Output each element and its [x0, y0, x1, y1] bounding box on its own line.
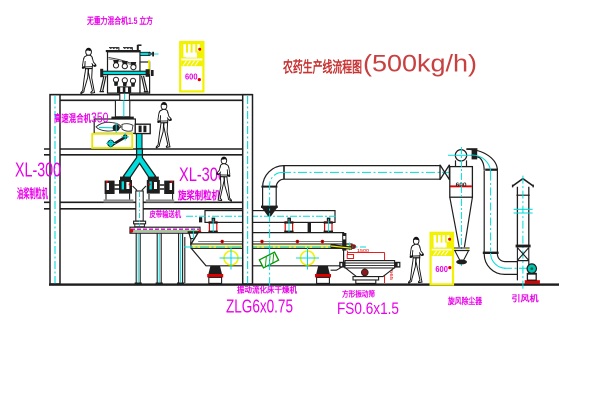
svg-text:1500: 1500	[357, 248, 370, 253]
svg-text:农药生产线流程图: 农药生产线流程图	[282, 58, 362, 76]
svg-text:(500kg/h): (500kg/h)	[363, 51, 477, 78]
svg-text:方形振动筛: 方形振动筛	[342, 288, 375, 298]
svg-text:旋桨制粒机: 旋桨制粒机	[177, 188, 220, 202]
svg-text:旋风除尘器: 旋风除尘器	[447, 296, 482, 306]
svg-text:高速混合机: 高速混合机	[54, 112, 91, 125]
svg-text:振动流化床干燥机: 振动流化床干燥机	[237, 284, 297, 294]
svg-text:XL-300: XL-300	[15, 160, 61, 182]
svg-text:600: 600	[185, 73, 198, 82]
svg-text:皮带输送机: 皮带输送机	[149, 209, 181, 219]
svg-text:FS0.6x1.5: FS0.6x1.5	[337, 300, 399, 318]
svg-text:ZLG6x0.75: ZLG6x0.75	[226, 296, 293, 317]
svg-text:600: 600	[435, 265, 448, 274]
svg-text:350: 350	[91, 110, 109, 127]
svg-text:油桨制粒机: 油桨制粒机	[17, 186, 48, 201]
svg-text:引风机: 引风机	[512, 294, 540, 304]
svg-text:无重力混合机1.5 立方: 无重力混合机1.5 立方	[86, 15, 153, 26]
